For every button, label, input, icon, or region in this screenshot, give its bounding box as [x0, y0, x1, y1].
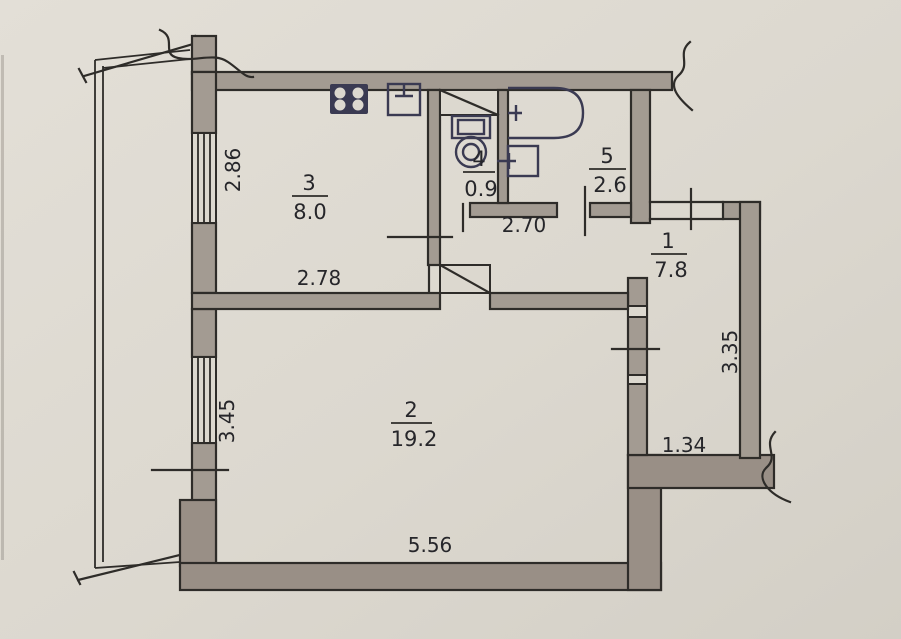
- dim-room3-width: 2.78: [297, 266, 342, 290]
- dim-room3-window: 2.86: [221, 148, 245, 193]
- dim-room1-width: 1.34: [662, 433, 707, 457]
- room-area: 8.0: [293, 200, 326, 224]
- room-area: 19.2: [391, 427, 438, 451]
- wall-top: [192, 72, 672, 90]
- floor-plan-photo: 3 8.0 4 0.9 5 2.6 1 7.8 2 19.2 2.86 2.78…: [0, 0, 901, 639]
- room-area: 0.9: [464, 177, 497, 201]
- room-area: 2.6: [593, 173, 626, 197]
- wall-segment: [192, 293, 440, 309]
- wall-joint: [628, 306, 647, 317]
- room-number: 1: [661, 229, 674, 253]
- window-room2: [192, 357, 216, 443]
- dim-corridor-width: 2.70: [502, 213, 547, 237]
- floor-plan: 3 8.0 4 0.9 5 2.6 1 7.8 2 19.2 2.86 2.78…: [0, 0, 901, 639]
- room-number: 3: [302, 171, 315, 195]
- room-number: 4: [472, 147, 485, 171]
- wall-segment: [180, 500, 216, 566]
- window-room3: [192, 133, 216, 223]
- wall-segment: [590, 203, 631, 217]
- door-leaf: [440, 265, 490, 293]
- stove-icon: [330, 84, 368, 114]
- dim-room2-window: 3.45: [215, 399, 239, 444]
- wall-segment: [192, 72, 216, 133]
- vent-shaft: [440, 90, 498, 115]
- room-number: 5: [600, 144, 613, 168]
- wall-segment: [192, 309, 216, 357]
- photo-edge: [1, 55, 4, 560]
- wall-segment: [498, 90, 508, 203]
- wall-joint: [628, 375, 647, 384]
- wall-segment: [631, 90, 650, 223]
- wall-bottom: [180, 563, 661, 590]
- wall-segment: [192, 223, 216, 293]
- dim-room1-depth: 3.35: [718, 330, 742, 375]
- room-number: 2: [404, 398, 417, 422]
- wall-segment: [490, 293, 628, 309]
- wall-segment: [628, 455, 774, 488]
- wall-segment: [192, 36, 216, 74]
- dim-room2-width: 5.56: [408, 533, 453, 557]
- wall-segment: [628, 278, 647, 455]
- room-area: 7.8: [654, 258, 687, 282]
- wall-segment: [428, 90, 440, 265]
- wall-segment: [740, 202, 760, 458]
